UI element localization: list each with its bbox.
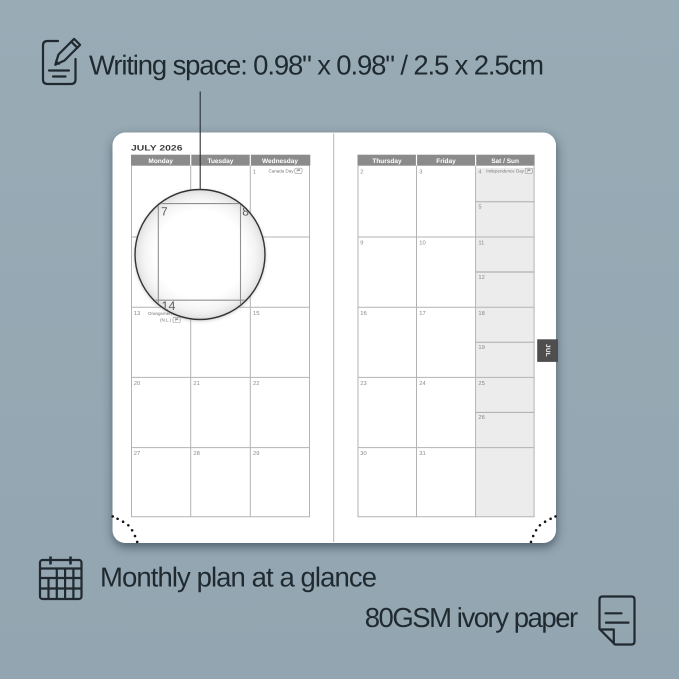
svg-text:13: 13 <box>134 310 140 317</box>
svg-text:30: 30 <box>360 450 366 457</box>
svg-text:JUL: JUL <box>544 344 551 357</box>
svg-text:1: 1 <box>253 169 256 175</box>
svg-text:JULY 2026: JULY 2026 <box>131 144 183 153</box>
svg-text:Thursday: Thursday <box>372 158 402 165</box>
svg-text:20: 20 <box>134 380 140 387</box>
svg-text:Independence Day: Independence Day <box>486 169 525 174</box>
svg-text:5: 5 <box>478 205 481 211</box>
svg-text:18: 18 <box>478 310 484 317</box>
svg-text:9: 9 <box>360 240 363 247</box>
svg-text:29: 29 <box>253 450 259 457</box>
svg-text:15: 15 <box>253 311 259 317</box>
svg-text:17: 17 <box>419 311 425 317</box>
svg-text:Tuesday: Tuesday <box>207 158 233 165</box>
svg-text:26: 26 <box>478 414 484 421</box>
svg-text:80GSM ivory paper: 80GSM ivory paper <box>365 602 579 633</box>
svg-text:7: 7 <box>161 205 168 219</box>
svg-text:Friday: Friday <box>436 158 456 165</box>
svg-text:2: 2 <box>360 168 363 175</box>
svg-text:Monthly plan at a glance: Monthly plan at a glance <box>100 561 377 592</box>
svg-text:24: 24 <box>419 380 426 387</box>
svg-text:27: 27 <box>134 450 140 457</box>
svg-text:11: 11 <box>478 241 484 247</box>
svg-text:10: 10 <box>419 240 425 247</box>
svg-text:28: 28 <box>193 450 199 457</box>
svg-text:25: 25 <box>478 380 484 387</box>
svg-text:Writing space: 0.98" x 0.98" /: Writing space: 0.98" x 0.98" / 2.5 x 2.5… <box>89 50 544 81</box>
svg-text:12: 12 <box>478 274 484 281</box>
svg-text:21: 21 <box>193 380 199 387</box>
svg-text:Canada Day: Canada Day <box>268 169 294 174</box>
svg-text:3: 3 <box>419 168 422 175</box>
svg-text:31: 31 <box>419 450 425 457</box>
svg-text:Wednesday: Wednesday <box>262 158 298 165</box>
svg-text:19: 19 <box>478 344 484 351</box>
svg-text:22: 22 <box>253 380 259 387</box>
svg-text:23: 23 <box>360 380 366 387</box>
svg-text:Sat / Sun: Sat / Sun <box>491 158 519 165</box>
svg-text:(N.L.): (N.L.) <box>160 318 172 323</box>
svg-text:Monday: Monday <box>148 158 173 165</box>
svg-text:16: 16 <box>360 310 366 317</box>
